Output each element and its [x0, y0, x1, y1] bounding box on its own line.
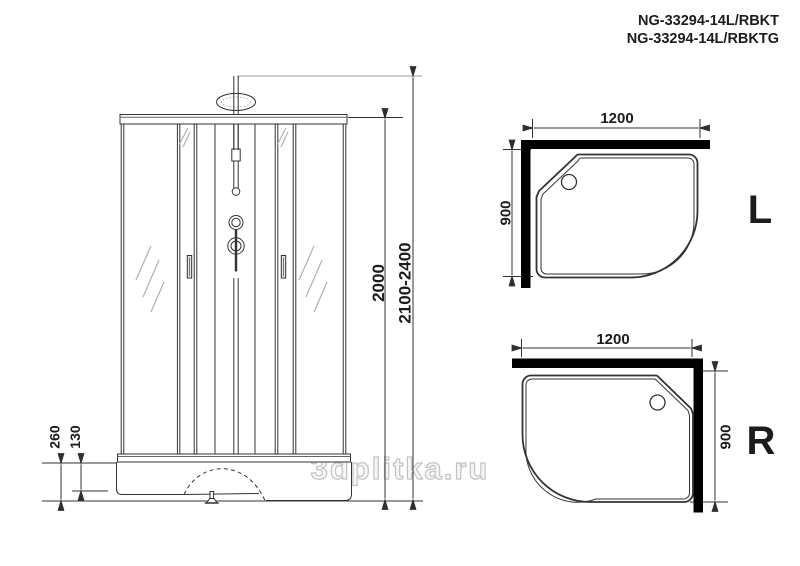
shower-head — [217, 94, 256, 111]
mixer-faucet — [228, 216, 244, 272]
base-step-label: 130 — [67, 425, 83, 449]
drawing-canvas: 3dplitka.ru NG-33294-14L/RBKT NG-33294-1… — [0, 0, 800, 566]
tray-top-view-left — [503, 119, 710, 288]
base-height-label: 260 — [47, 425, 63, 449]
tray-r-letter: R — [747, 419, 776, 463]
tray-l-width-label: 1200 — [600, 110, 633, 127]
height-total-label: 2100-2400 — [396, 242, 415, 323]
model-number-line1: NG-33294-14L/RBKT — [638, 13, 779, 29]
tray-l-outline — [537, 155, 698, 278]
tray-r-wall-bars — [512, 359, 703, 513]
model-number-line2: NG-33294-14L/RBKTG — [627, 31, 779, 47]
technical-drawing: 3dplitka.ru NG-33294-14L/RBKT NG-33294-1… — [0, 0, 800, 566]
front-view — [42, 76, 423, 503]
cabin-roof-bar — [120, 115, 347, 125]
tray-r-drain — [650, 395, 665, 410]
door-handle-left — [187, 256, 191, 279]
door-handle-right — [281, 256, 285, 279]
height-inner-label: 2000 — [369, 264, 388, 302]
tray-rim — [118, 454, 351, 462]
tray-r-width-label: 1200 — [596, 331, 629, 348]
tray-l-drain — [562, 175, 577, 190]
tray-l-depth-label: 900 — [498, 200, 515, 225]
tray-r-outline — [523, 376, 694, 503]
title-block: NG-33294-14L/RBKT NG-33294-14L/RBKTG — [627, 13, 779, 47]
tray-r-depth-label: 900 — [718, 424, 735, 449]
tray-top-view-right — [512, 339, 728, 513]
tray-l-wall-bars — [521, 140, 710, 288]
tray-l-letter: L — [748, 188, 772, 232]
